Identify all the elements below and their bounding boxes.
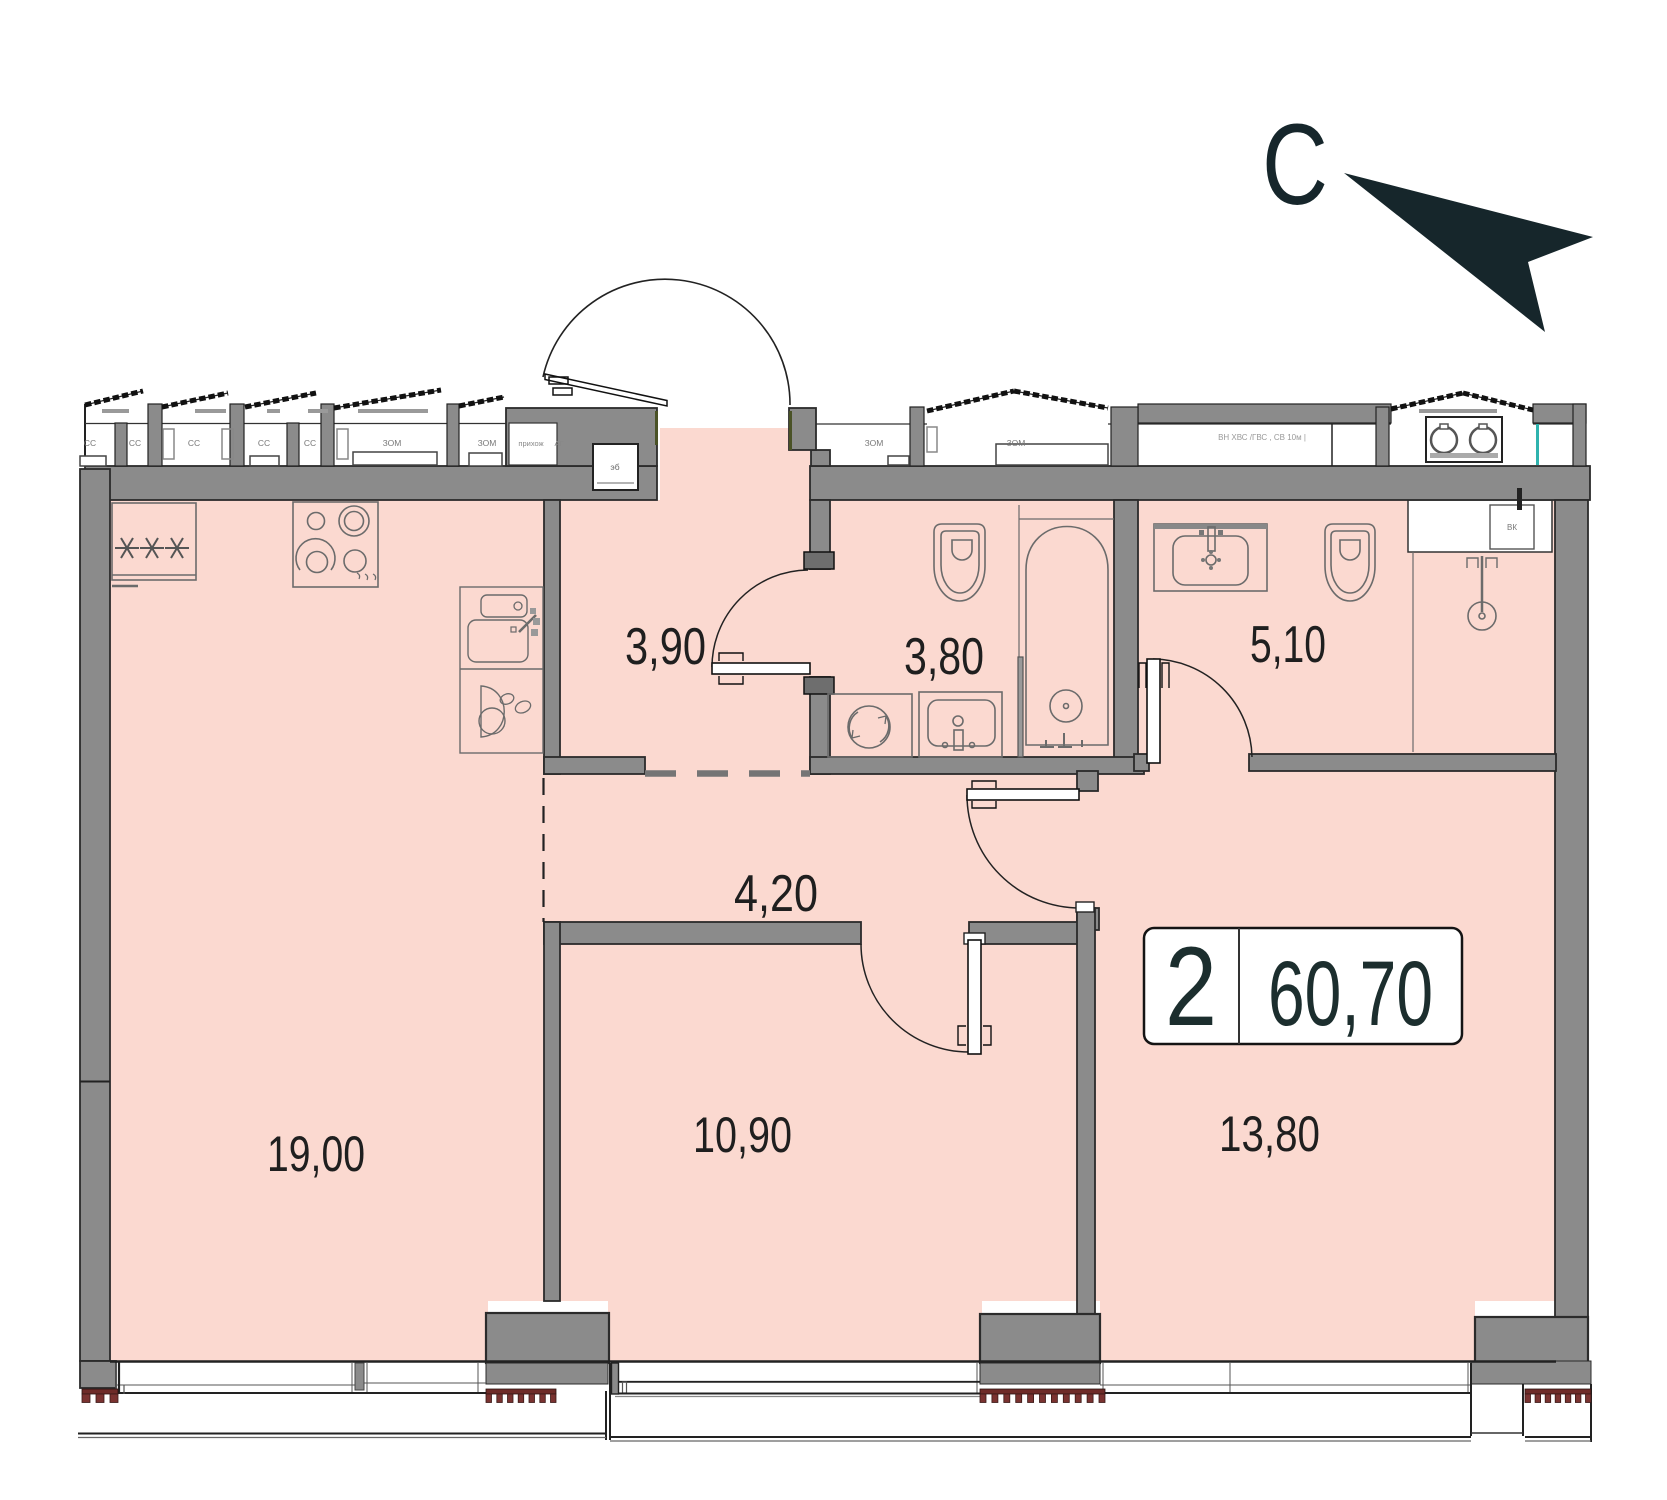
svg-text:ЗОМ: ЗОМ — [383, 438, 402, 448]
svg-text:19,00: 19,00 — [267, 1126, 365, 1182]
svg-text:ВН ХВС /ГВС , СВ 10м |: ВН ХВС /ГВС , СВ 10м | — [1218, 433, 1306, 442]
svg-text:С: С — [1262, 101, 1328, 229]
svg-text:СС: СС — [84, 438, 96, 448]
svg-text:СС: СС — [188, 438, 200, 448]
svg-text:2: 2 — [1165, 924, 1217, 1049]
svg-text:ЗОМ: ЗОМ — [1007, 438, 1026, 448]
svg-text:ЗОМ: ЗОМ — [478, 438, 497, 448]
svg-text:5,10: 5,10 — [1250, 616, 1326, 674]
svg-text:СС: СС — [258, 438, 270, 448]
svg-text:13,80: 13,80 — [1219, 1106, 1320, 1162]
svg-text:эб: эб — [610, 462, 619, 472]
svg-text:3,90: 3,90 — [625, 618, 706, 676]
svg-text:4,20: 4,20 — [734, 865, 818, 923]
svg-text:3,80: 3,80 — [904, 628, 984, 686]
svg-text:ВК: ВК — [1507, 523, 1517, 532]
svg-text:прихож: прихож — [518, 439, 543, 448]
svg-text:СС: СС — [304, 438, 316, 448]
svg-text:АГ: АГ — [554, 439, 563, 448]
svg-text:60,70: 60,70 — [1268, 943, 1433, 1045]
svg-text:СС: СС — [129, 438, 141, 448]
svg-text:10,90: 10,90 — [693, 1107, 792, 1163]
svg-text:ЗОМ: ЗОМ — [865, 438, 884, 448]
